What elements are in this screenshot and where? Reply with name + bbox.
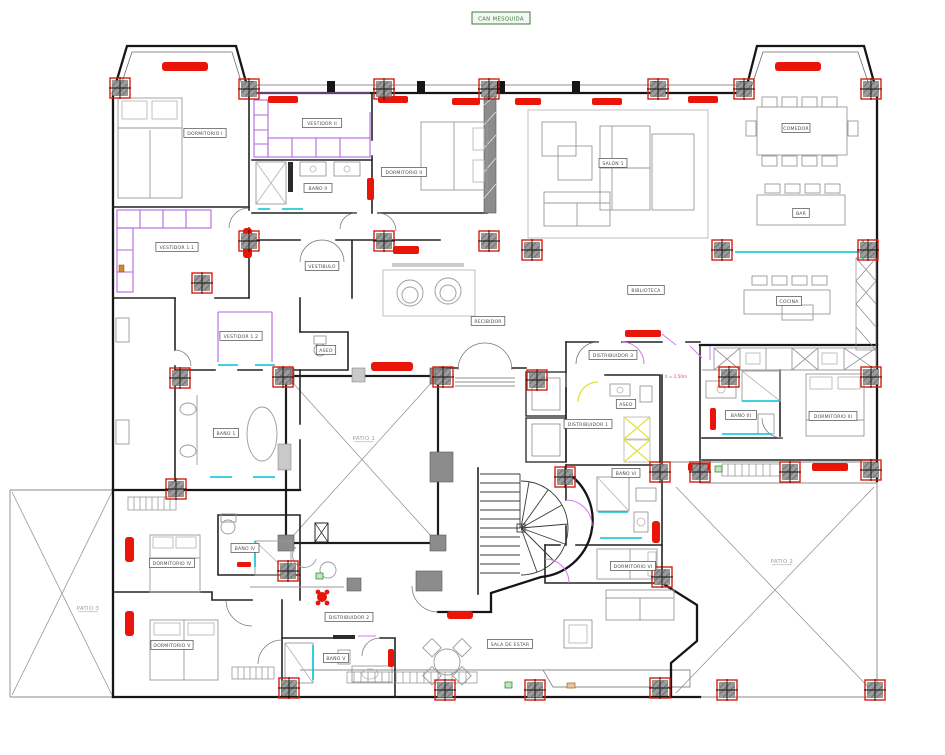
column-marker-icon [165,478,187,500]
column-marker-icon [238,230,260,252]
column-marker-icon [373,230,395,252]
red-symbol [316,590,330,606]
room-label-salón-1: SALÓN 1 [599,158,627,167]
title-block: CAN MESQUIDA [472,12,530,24]
column-marker-icon [278,677,300,699]
column-marker-icon [272,366,294,388]
column-marker-icon [649,677,671,699]
svg-text:ASEO: ASEO [619,402,633,408]
svg-text:BAÑO 1: BAÑO 1 [217,430,236,437]
column-marker-icon [864,679,886,701]
svg-text:COCINA: COCINA [779,299,799,305]
column-marker-icon [478,230,500,252]
svg-text:RECIBIDOR: RECIBIDOR [474,319,502,325]
column-marker-icon [434,679,456,701]
column-marker-icon [647,78,669,100]
column-marker-icon [857,239,879,261]
column-marker-icon [711,239,733,261]
height-annotation: h = 2,50m [665,374,687,379]
svg-text:BAÑO VI: BAÑO VI [616,470,637,477]
column-marker-icon [526,369,548,391]
room-label-dormitorio-vi: DORMITORIO VI [610,561,655,570]
svg-text:DISTRIBUIDOR 2: DISTRIBUIDOR 2 [329,615,370,621]
svg-text:VESTIBULO: VESTIBULO [308,264,336,270]
column-marker-icon [860,78,882,100]
column-marker-icon [733,78,755,100]
column-marker-icon [191,272,213,294]
room-label-patio-2: PATIO 2 [771,559,793,565]
column-marker-icon [716,679,738,701]
room-label-patio-1: PATIO 1 [353,436,375,442]
column-marker-icon [238,78,260,100]
room-label-sala-de-estar: SALA DE ESTAR [487,639,532,648]
column-marker-icon [169,367,191,389]
svg-text:PATIO 3: PATIO 3 [77,606,99,612]
column-marker-icon [109,77,131,99]
shaft-x-markers [624,417,650,462]
svg-text:BAÑO II: BAÑO II [309,185,328,192]
room-label-distribuidor-2: DISTRIBUIDOR 2 [325,612,373,621]
room-label-dormitorio-v: DORMITORIO V [151,640,193,649]
room-label-bar: BAR [793,208,810,217]
floor-plan-canvas: DORMITORIO IVESTIDOR IIBAÑO IIDORMITORIO… [0,0,945,755]
column-marker-icon [524,679,546,701]
svg-text:DORMITORIO V: DORMITORIO V [153,643,191,649]
column-marker-icon [860,366,882,388]
room-label-dormitorio-iv: DORMITORIO IV [149,558,194,567]
svg-text:SALA DE ESTAR: SALA DE ESTAR [491,642,530,648]
door-swings [175,208,782,664]
column-marker-icon [860,459,882,481]
column-marker-icon [521,239,543,261]
room-label-vestidor-1-2: VESTIDOR 1.2 [220,331,262,340]
plan-title: CAN MESQUIDA [478,17,524,23]
room-label-biblioteca: BIBLIOTECA [628,285,665,294]
interior-walls [113,93,877,697]
svg-text:PATIO 2: PATIO 2 [771,559,793,565]
room-label-baño-iii: BAÑO III [726,410,757,419]
room-label-dormitorio-i: DORMITORIO I [184,128,226,137]
room-label-patio-3: PATIO 3 [77,606,99,612]
room-label-vestibulo: VESTIBULO [305,261,339,270]
svg-text:VESTIDOR 1.1: VESTIDOR 1.1 [160,245,195,251]
room-label-aseo: ASEO [316,345,335,354]
svg-text:BAÑO IV: BAÑO IV [235,545,256,552]
column-marker-icon [779,461,801,483]
column-marker-icon [373,78,395,100]
svg-text:DORMITORIO III: DORMITORIO III [814,414,853,420]
room-label-aseo: ASEO [616,399,635,408]
floor-plan-page: DORMITORIO IVESTIDOR IIBAÑO IIDORMITORIO… [0,0,945,755]
svg-text:DORMITORIO II: DORMITORIO II [385,170,422,176]
column-marker-icon [718,366,740,388]
column-marker-icon [649,461,671,483]
room-label-baño-v: BAÑO V [323,653,348,662]
room-label-dormitorio-ii: DORMITORIO II [381,167,426,176]
room-label-vestidor-1-1: VESTIDOR 1.1 [156,242,198,251]
svg-text:PATIO 1: PATIO 1 [353,436,375,442]
room-label-baño-ii: BAÑO II [304,183,332,192]
column-marker-icon [689,461,711,483]
room-labels: DORMITORIO IVESTIDOR IIBAÑO IIDORMITORIO… [77,118,857,662]
svg-text:COMEDOR: COMEDOR [783,126,809,132]
column-marker-icon [432,366,454,388]
svg-text:DISTRIBUIDOR 3: DISTRIBUIDOR 3 [593,353,634,359]
column-marker-icon [554,466,576,488]
column-markers [109,77,886,701]
svg-text:BAÑO III: BAÑO III [731,412,751,419]
room-label-distribuidor-3: DISTRIBUIDOR 3 [589,350,637,359]
room-label-comedor: COMEDOR [782,123,810,132]
room-label-dormitorio-iii: DORMITORIO III [809,411,857,420]
room-label-baño-iv: BAÑO IV [231,543,259,552]
svg-text:VESTIDOR II: VESTIDOR II [307,121,337,127]
room-label-baño-1: BAÑO 1 [213,428,238,437]
svg-text:DORMITORIO I: DORMITORIO I [187,131,222,137]
svg-text:DISTRIBUIDOR 1: DISTRIBUIDOR 1 [568,422,609,428]
svg-text:SALÓN 1: SALÓN 1 [602,160,623,167]
svg-text:ASEO: ASEO [319,348,333,354]
svg-text:BAÑO V: BAÑO V [326,655,346,662]
svg-text:DORMITORIO VI: DORMITORIO VI [614,564,653,570]
room-label-baño-vi: BAÑO VI [612,468,640,477]
column-marker-icon [277,560,299,582]
column-marker-icon [478,78,500,100]
svg-text:BAR: BAR [796,211,807,217]
svg-text:VESTIDOR 1.2: VESTIDOR 1.2 [224,334,259,340]
room-label-cocina: COCINA [776,296,801,305]
room-label-vestidor-ii: VESTIDOR II [302,118,341,127]
plumbing-lines [210,209,863,680]
room-label-distribuidor-1: DISTRIBUIDOR 1 [564,419,612,428]
svg-text:DORMITORIO IV: DORMITORIO IV [153,561,192,567]
room-label-recibidor: RECIBIDOR [471,316,505,325]
svg-text:BIBLIOTECA: BIBLIOTECA [631,288,661,294]
